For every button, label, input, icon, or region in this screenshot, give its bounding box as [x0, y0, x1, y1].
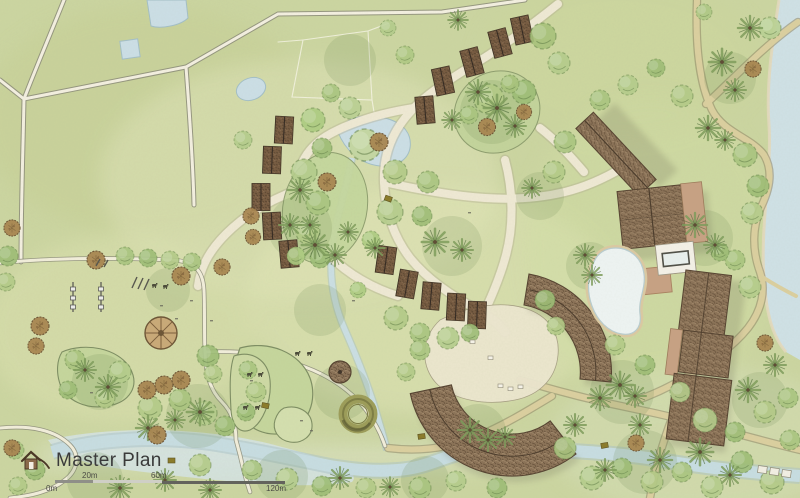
title-block: Master Plan — [20, 449, 162, 473]
scale-label-60m: 60m — [151, 471, 167, 480]
page-title: Master Plan — [56, 450, 162, 472]
scale-bar-segment — [55, 480, 93, 483]
round-hut — [329, 361, 351, 383]
scale-label-120m: 120m — [266, 484, 286, 493]
pool — [662, 251, 689, 267]
site-plan-drawing — [0, 0, 800, 498]
scale-label-0m: 0m — [46, 484, 57, 493]
hut-logo-icon — [20, 449, 50, 473]
scale-label-20m: 20m — [82, 471, 98, 480]
round-pavilion — [145, 317, 177, 349]
pond-square — [120, 39, 140, 59]
master-plan-canvas: Master Plan 0m 20m 60m 120m — [0, 0, 800, 498]
kidney-pond — [589, 248, 645, 334]
scale-bar-segment — [93, 480, 162, 483]
